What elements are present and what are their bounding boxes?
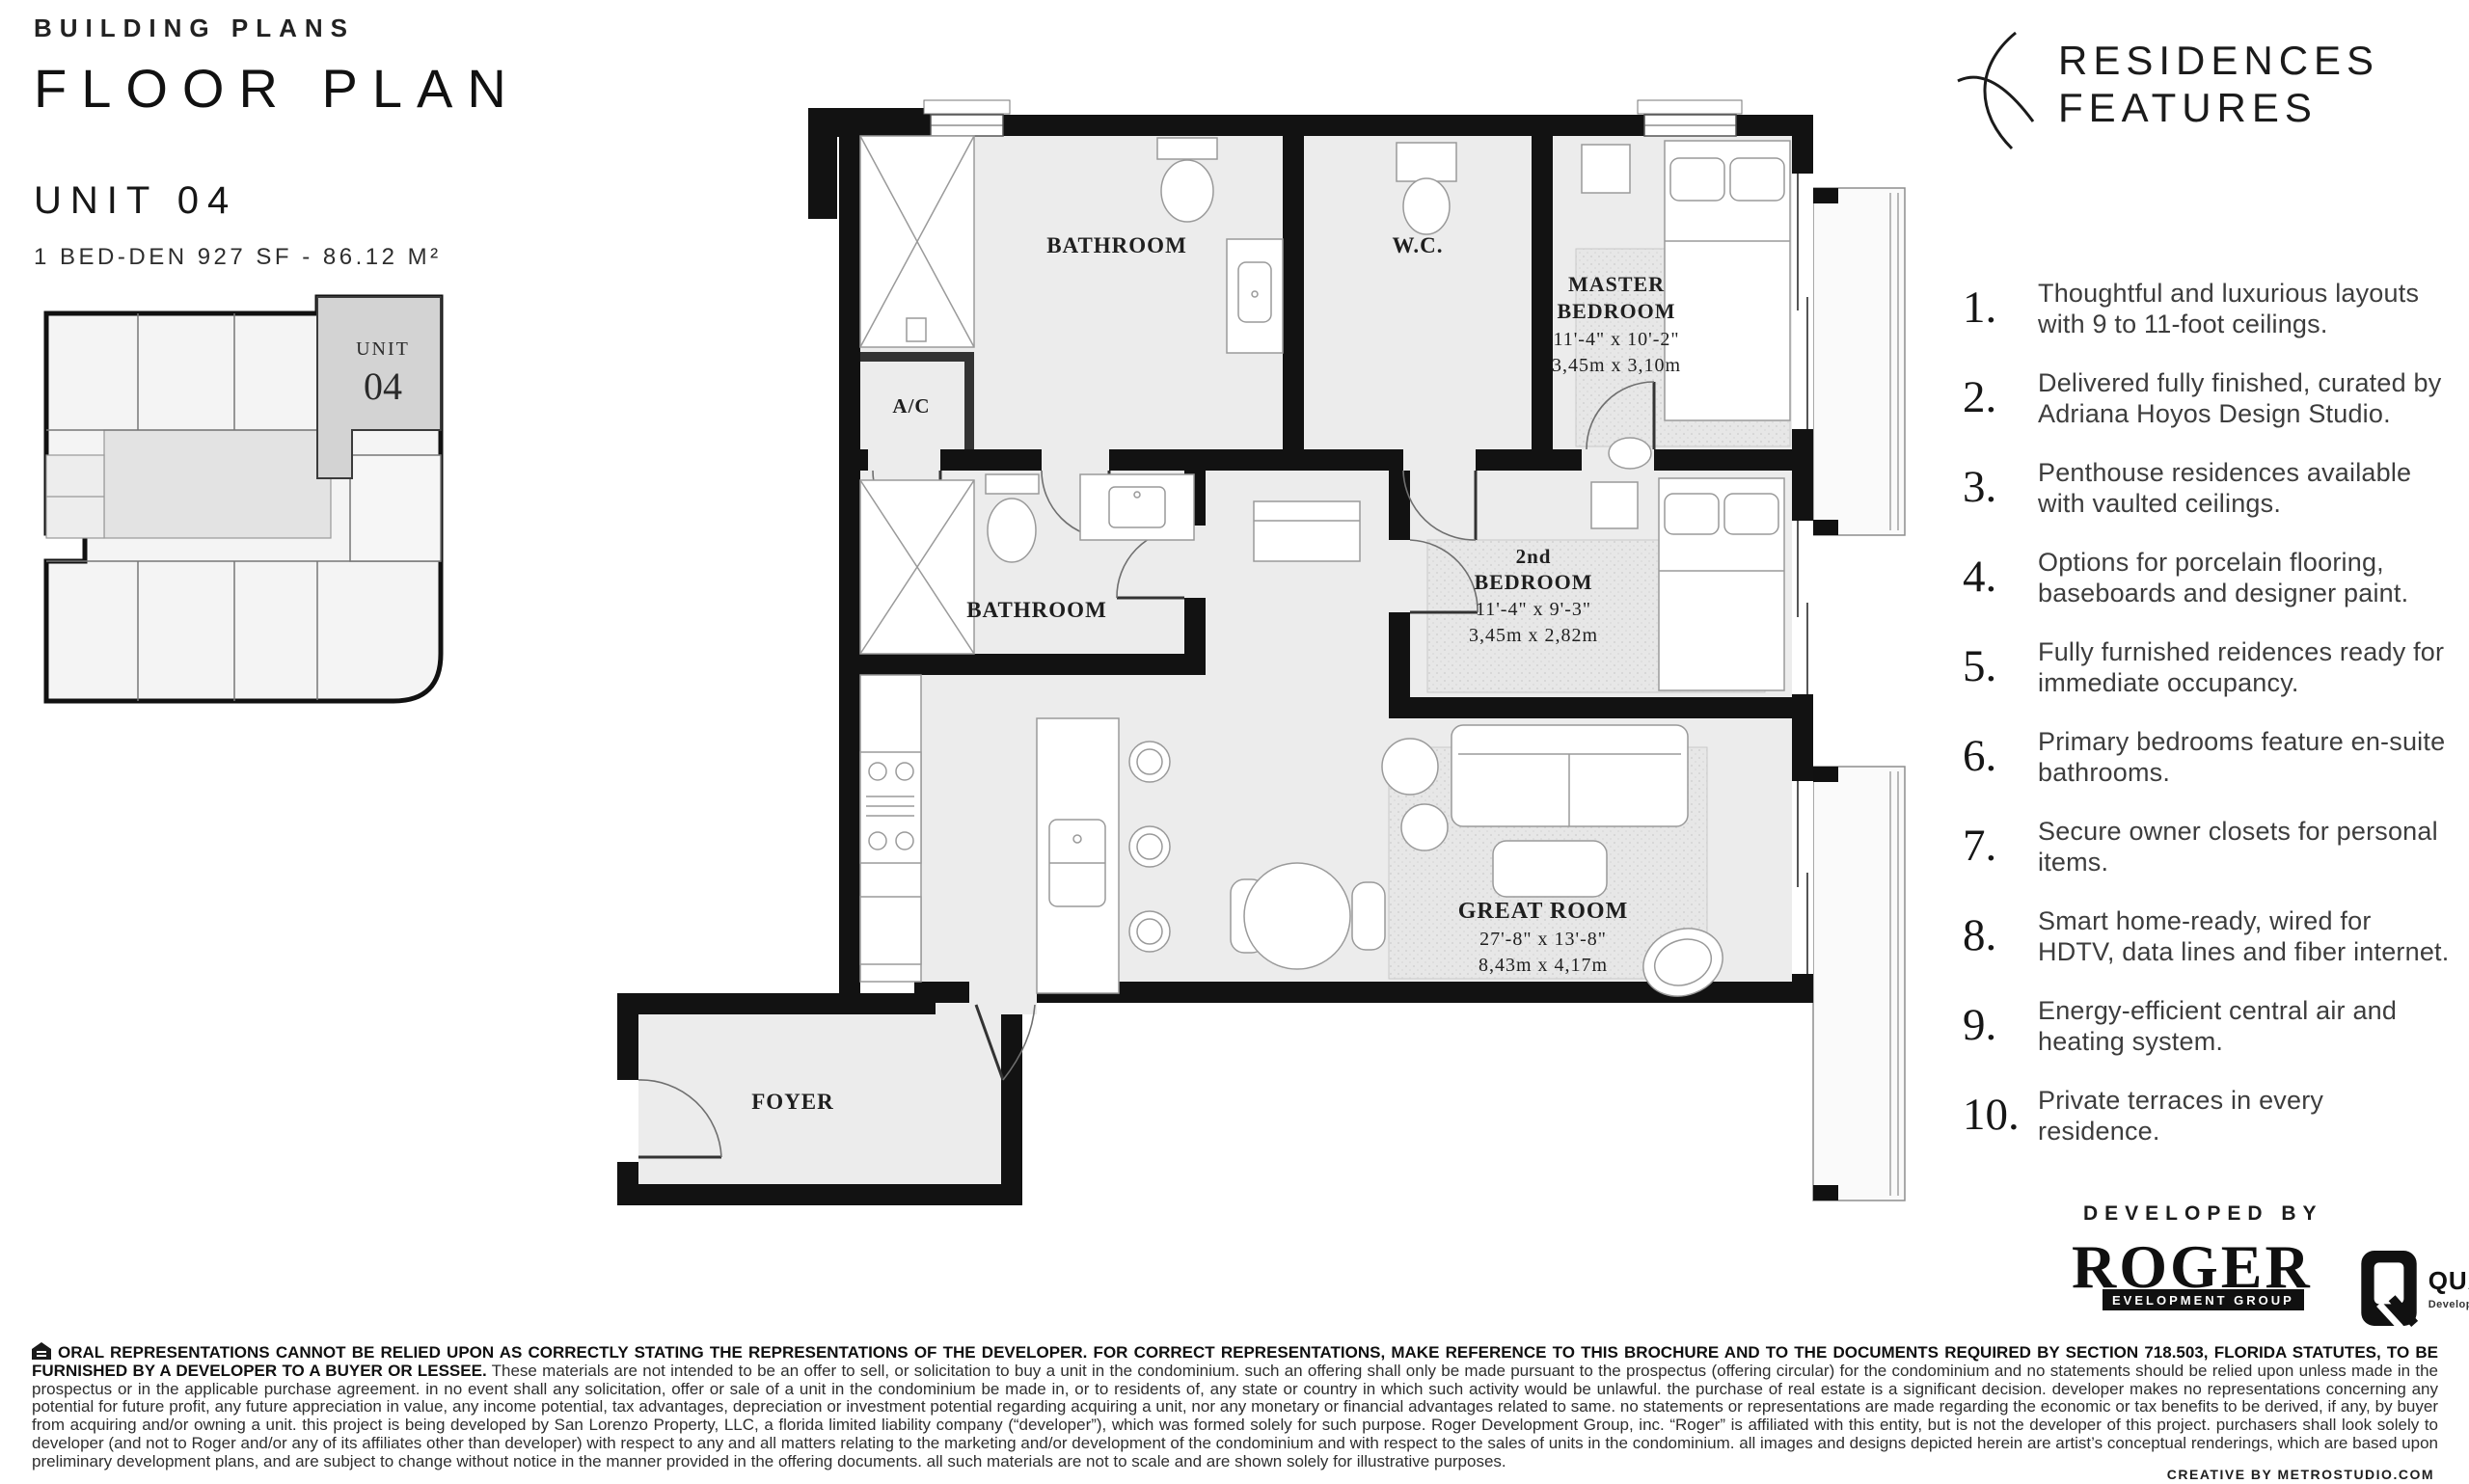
kitchen-counter [860, 675, 921, 982]
feature-item: 10.Private terraces in every residence. [1963, 1085, 2450, 1147]
shower-1 [860, 136, 974, 347]
svg-text:8,43m x 4,17m: 8,43m x 4,17m [1479, 955, 1608, 976]
features-list: 1.Thoughtful and luxurious layouts with … [1963, 278, 2450, 1174]
unit-title: UNIT 04 [34, 179, 521, 223]
features-header: RESIDENCES FEATURES [1956, 29, 2443, 152]
svg-text:11'-4" x 9'-3": 11'-4" x 9'-3" [1476, 599, 1591, 620]
feature-item: 3.Penthouse residences available with va… [1963, 457, 2450, 519]
title-block: BUILDING PLANS FLOOR PLAN UNIT 04 1 BED-… [34, 13, 521, 271]
balcony-great-room [1813, 767, 1905, 1201]
residences-logo-mark [1956, 29, 2041, 152]
label-bathroom-2: BATHROOM [966, 598, 1107, 622]
feature-item: 4.Options for porcelain flooring, basebo… [1963, 547, 2450, 608]
shower-2 [860, 480, 974, 654]
vanity-2 [1080, 474, 1194, 540]
keyplan-unit-label: UNIT [356, 338, 410, 360]
svg-text:2nd: 2nd [1516, 545, 1552, 568]
feature-item: 1.Thoughtful and luxurious layouts with … [1963, 278, 2450, 339]
features-title: RESIDENCES FEATURES [2058, 37, 2379, 131]
legal-disclaimer: ORAL REPRESENTATIONS CANNOT BE RELIED UP… [32, 1342, 2438, 1471]
feature-item: 5.Fully furnished reidences ready for im… [1963, 636, 2450, 698]
toilet-1 [1157, 138, 1217, 222]
brochure-page: BUILDING PLANS FLOOR PLAN UNIT 04 1 BED-… [0, 0, 2469, 1484]
floor-plan: BATHROOM W.C. A/C MASTER BEDROOM 11'-4" … [608, 92, 1929, 1215]
feature-item: 2.Delivered fully finished, curated by A… [1963, 367, 2450, 429]
balcony-master [1813, 188, 1905, 535]
keyplan-unit-number: 04 [364, 364, 402, 408]
feature-item: 9.Energy-efficient central air and heati… [1963, 995, 2450, 1057]
unit-specs: 1 BED-DEN 927 SF - 86.12 M² [34, 244, 521, 271]
quaddra-logo-mark [2359, 1249, 2419, 1328]
svg-text:27'-8" x 13'-8": 27'-8" x 13'-8" [1479, 929, 1607, 950]
equal-housing-icon [32, 1342, 51, 1360]
feature-item: 7.Secure owner closets for personal item… [1963, 816, 2450, 877]
svg-text:MASTER: MASTER [1568, 272, 1665, 296]
svg-text:11'-4" x 10'-2": 11'-4" x 10'-2" [1553, 329, 1679, 350]
feature-item: 6.Primary bedrooms feature en-suite bath… [1963, 726, 2450, 788]
coffee-table [1493, 841, 1607, 897]
svg-text:BEDROOM: BEDROOM [1474, 570, 1592, 594]
svg-text:3,45m x 3,10m: 3,45m x 3,10m [1552, 355, 1681, 376]
quaddra-logo: QUADDRA Development Group [2359, 1249, 2469, 1328]
developed-by-label: DEVELOPED BY [2083, 1202, 2448, 1226]
vanity-1 [1227, 239, 1283, 353]
svg-text:3,45m x 2,82m: 3,45m x 2,82m [1469, 625, 1598, 646]
label-great-room: GREAT ROOM 27'-8" x 13'-8" 8,43m x 4,17m [1458, 899, 1628, 976]
page-title: FLOOR PLAN [34, 57, 521, 120]
feature-item: 8.Smart home-ready, wired for HDTV, data… [1963, 905, 2450, 967]
developed-by-block: DEVELOPED BY ROGER EVELOPMENT GROUP QUAD… [2072, 1202, 2448, 1328]
slider-doors [1792, 174, 1813, 974]
label-foyer: FOYER [751, 1090, 834, 1114]
svg-text:GREAT ROOM: GREAT ROOM [1458, 899, 1628, 924]
kitchen-island [1037, 718, 1170, 993]
label-wc: W.C. [1393, 233, 1444, 257]
roger-logo: ROGER EVELOPMENT GROUP [2072, 1239, 2313, 1310]
credit-line: CREATIVE BY METROSTUDIO.COM [2167, 1467, 2434, 1482]
label-ac: A/C [892, 394, 930, 418]
toilet-2 [986, 474, 1039, 562]
key-plan: UNIT 04 [32, 289, 466, 733]
label-bathroom-1: BATHROOM [1046, 233, 1187, 257]
hall-dresser [1254, 501, 1360, 561]
eyebrow: BUILDING PLANS [34, 13, 521, 43]
svg-text:BEDROOM: BEDROOM [1557, 299, 1675, 323]
